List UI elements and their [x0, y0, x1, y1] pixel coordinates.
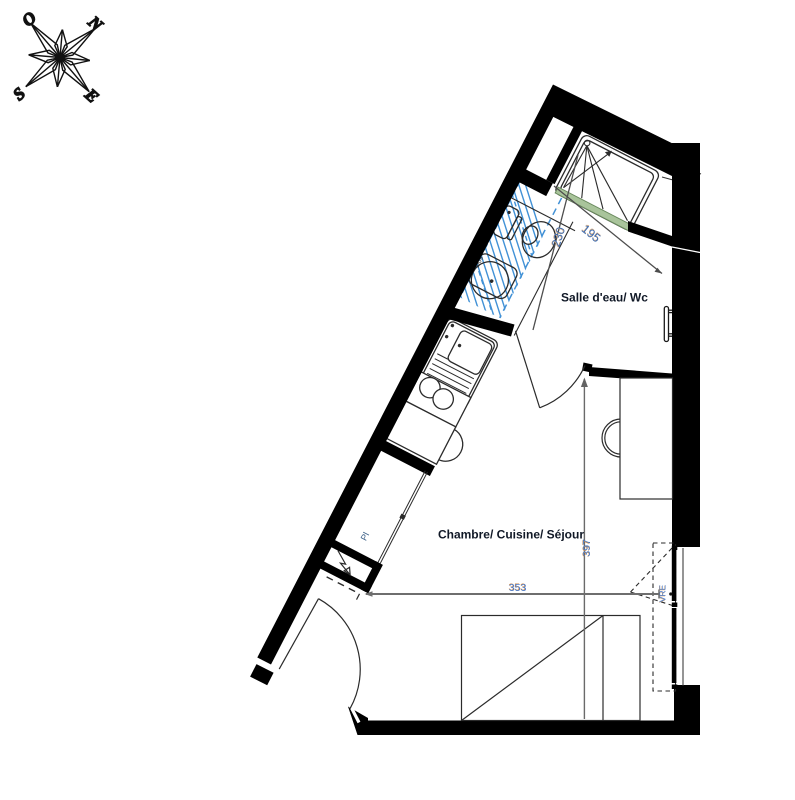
svg-text:Chambre/ Cuisine/ Séjour: Chambre/ Cuisine/ Séjour	[438, 528, 584, 542]
svg-text:397: 397	[581, 539, 593, 557]
svg-text:Salle d'eau/ Wc: Salle d'eau/ Wc	[561, 291, 648, 305]
svg-text:353: 353	[509, 582, 527, 594]
